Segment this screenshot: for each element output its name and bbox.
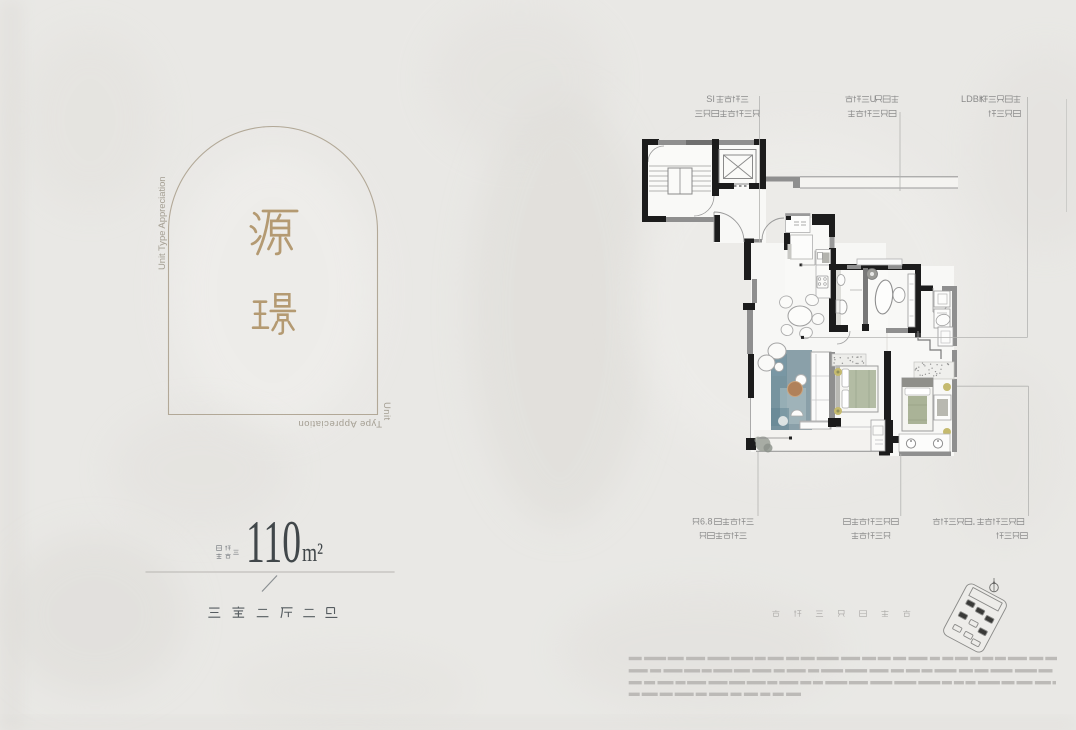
svg-text:m²: m² bbox=[302, 538, 323, 567]
svg-text:Unit: Unit bbox=[381, 402, 392, 421]
svg-text:SI: SI bbox=[706, 94, 715, 104]
svg-text:Unit Type Appreciation: Unit Type Appreciation bbox=[157, 176, 168, 270]
svg-text:LDBK: LDBK bbox=[961, 94, 986, 104]
svg-text:U: U bbox=[870, 94, 877, 104]
svg-text:Type Appreciation: Type Appreciation bbox=[298, 418, 382, 429]
svg-text:110: 110 bbox=[246, 509, 301, 575]
svg-text:6.8: 6.8 bbox=[700, 516, 713, 526]
